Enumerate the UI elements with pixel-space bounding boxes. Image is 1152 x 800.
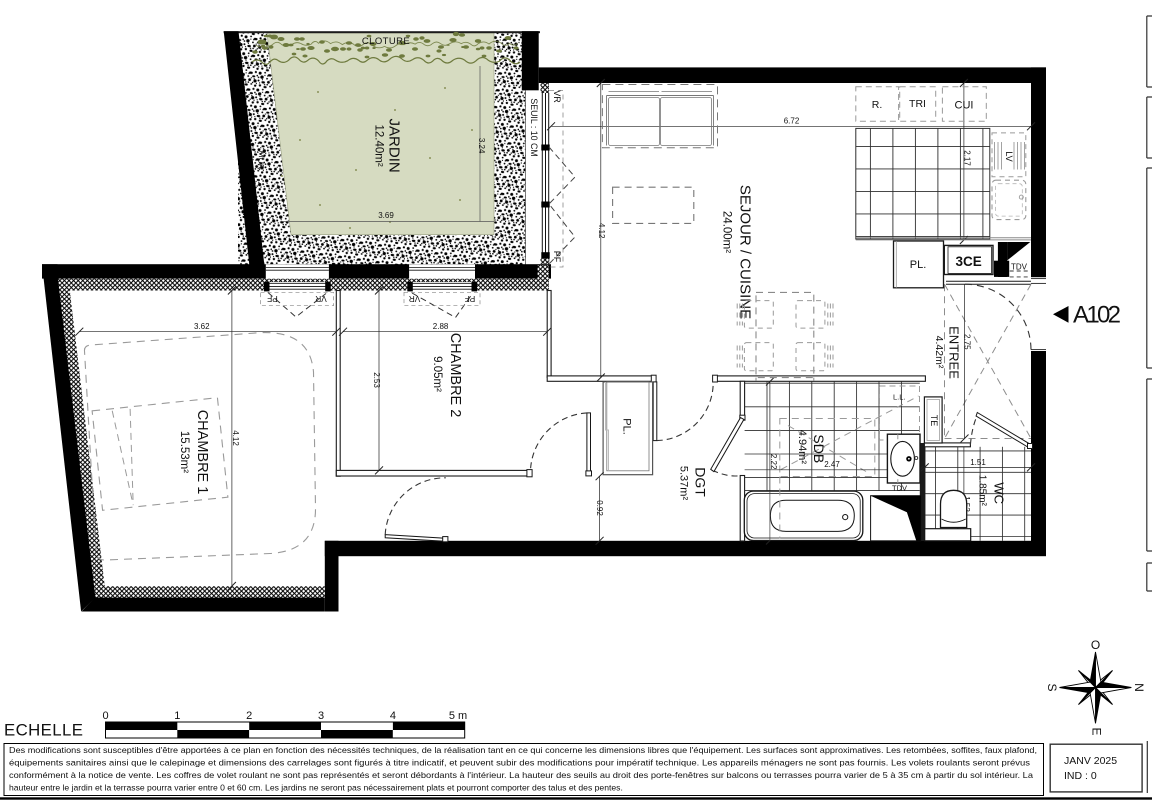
svg-text:2: 2 [246,710,252,722]
svg-text:VR: VR [552,90,562,103]
svg-text:2.53: 2.53 [372,372,381,388]
svg-text:0.92: 0.92 [595,500,604,516]
svg-text:3.24: 3.24 [477,138,486,154]
svg-text:IND : 0: IND : 0 [1064,770,1097,782]
svg-text:SEJOUR / CUISINE: SEJOUR / CUISINE [737,185,754,319]
svg-text:3: 3 [318,710,324,722]
svg-text:PF: PF [552,251,562,263]
svg-text:2.75: 2.75 [963,334,972,350]
svg-text:0: 0 [102,710,108,722]
svg-text:JANV 2025: JANV 2025 [1064,755,1117,767]
svg-text:3CE: 3CE [955,254,981,269]
svg-text:4.12: 4.12 [231,430,240,446]
svg-text:Des modifications sont suscept: Des modifications sont susceptibles d'êt… [9,745,1037,755]
svg-text:L.L.: L.L. [893,393,906,402]
svg-text:1.85m²: 1.85m² [977,475,988,507]
svg-text:VR: VR [409,294,421,304]
svg-text:5 m: 5 m [449,710,467,722]
svg-text:VR: VR [315,294,327,304]
svg-text:2.22: 2.22 [769,454,778,470]
svg-text:CHAMBRE 2: CHAMBRE 2 [447,333,463,418]
svg-text:hauteur entre le jardin et la: hauteur entre le jardin et la terrasse p… [9,782,623,792]
svg-text:équipements sanitaires ainsi q: équipements sanitaires ainsi que le cale… [9,757,1030,767]
svg-text:DGT: DGT [693,467,709,497]
svg-text:ENTREE: ENTREE [947,326,962,379]
svg-text:SDB: SDB [811,434,827,463]
svg-text:MUR: MUR [255,150,267,170]
svg-text:LV: LV [1004,151,1014,161]
svg-text:2.88: 2.88 [433,322,449,331]
svg-text:N: N [1132,683,1146,692]
svg-text:PL.: PL. [910,259,927,271]
svg-text:4.94m²: 4.94m² [796,430,808,465]
svg-text:O: O [1091,638,1100,652]
svg-text:12.40m²: 12.40m² [373,125,385,167]
svg-text:TE: TE [929,415,939,427]
svg-text:CHAMBRE 1: CHAMBRE 1 [194,410,210,495]
svg-text:ECHELLE: ECHELLE [4,721,83,740]
svg-text:15.53m²: 15.53m² [178,431,190,473]
svg-text:E: E [1089,727,1103,735]
svg-text:CUI: CUI [955,100,974,112]
svg-text:TDV: TDV [1011,262,1028,271]
svg-text:5.37m²: 5.37m² [678,466,690,501]
svg-text:2.17: 2.17 [962,150,971,166]
svg-text:R.: R. [872,99,883,111]
svg-text:3.69: 3.69 [378,211,394,220]
svg-text:PF: PF [267,294,278,304]
svg-text:TRI: TRI [909,98,926,110]
svg-text:1: 1 [174,710,180,722]
svg-text:4.42m²: 4.42m² [933,336,945,369]
svg-text:1.51: 1.51 [970,458,986,467]
svg-text:PL.: PL. [621,418,633,435]
svg-text:9.05m²: 9.05m² [431,356,443,392]
svg-text:3.62: 3.62 [194,322,210,331]
svg-text:A102: A102 [1073,302,1121,329]
svg-text:TDV: TDV [892,484,907,493]
svg-text:S: S [1045,683,1059,691]
svg-text:24.00m²: 24.00m² [721,211,733,253]
svg-text:PF: PF [465,294,476,304]
svg-text:6.72: 6.72 [784,117,800,126]
svg-text:conformément à la notice de ve: conformément à la notice de vente. Les c… [9,770,1033,780]
svg-text:WC: WC [992,482,1007,504]
svg-text:4: 4 [390,710,396,722]
svg-text:SEUIL : 10 CM: SEUIL : 10 CM [529,98,539,156]
svg-text:CLOTURE: CLOTURE [362,36,410,47]
svg-text:JARDIN: JARDIN [386,119,403,173]
svg-text:4.12: 4.12 [597,223,606,239]
